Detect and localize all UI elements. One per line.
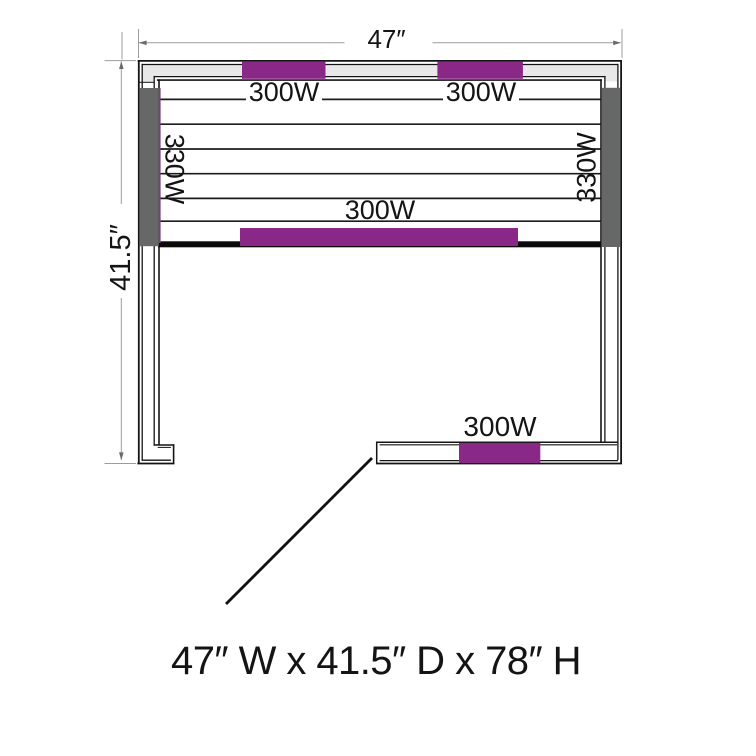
svg-text:47″: 47″ <box>367 24 405 54</box>
svg-text:300W: 300W <box>446 77 517 107</box>
svg-text:330W: 330W <box>572 132 602 203</box>
svg-text:300W: 300W <box>345 195 416 225</box>
svg-text:47″ W x 41.5″ D x 78″ H: 47″ W x 41.5″ D x 78″ H <box>171 639 581 683</box>
svg-text:300W: 300W <box>249 77 320 107</box>
svg-text:330W: 330W <box>160 134 190 205</box>
svg-text:300W: 300W <box>463 411 537 442</box>
svg-text:41.5″: 41.5″ <box>105 224 137 291</box>
